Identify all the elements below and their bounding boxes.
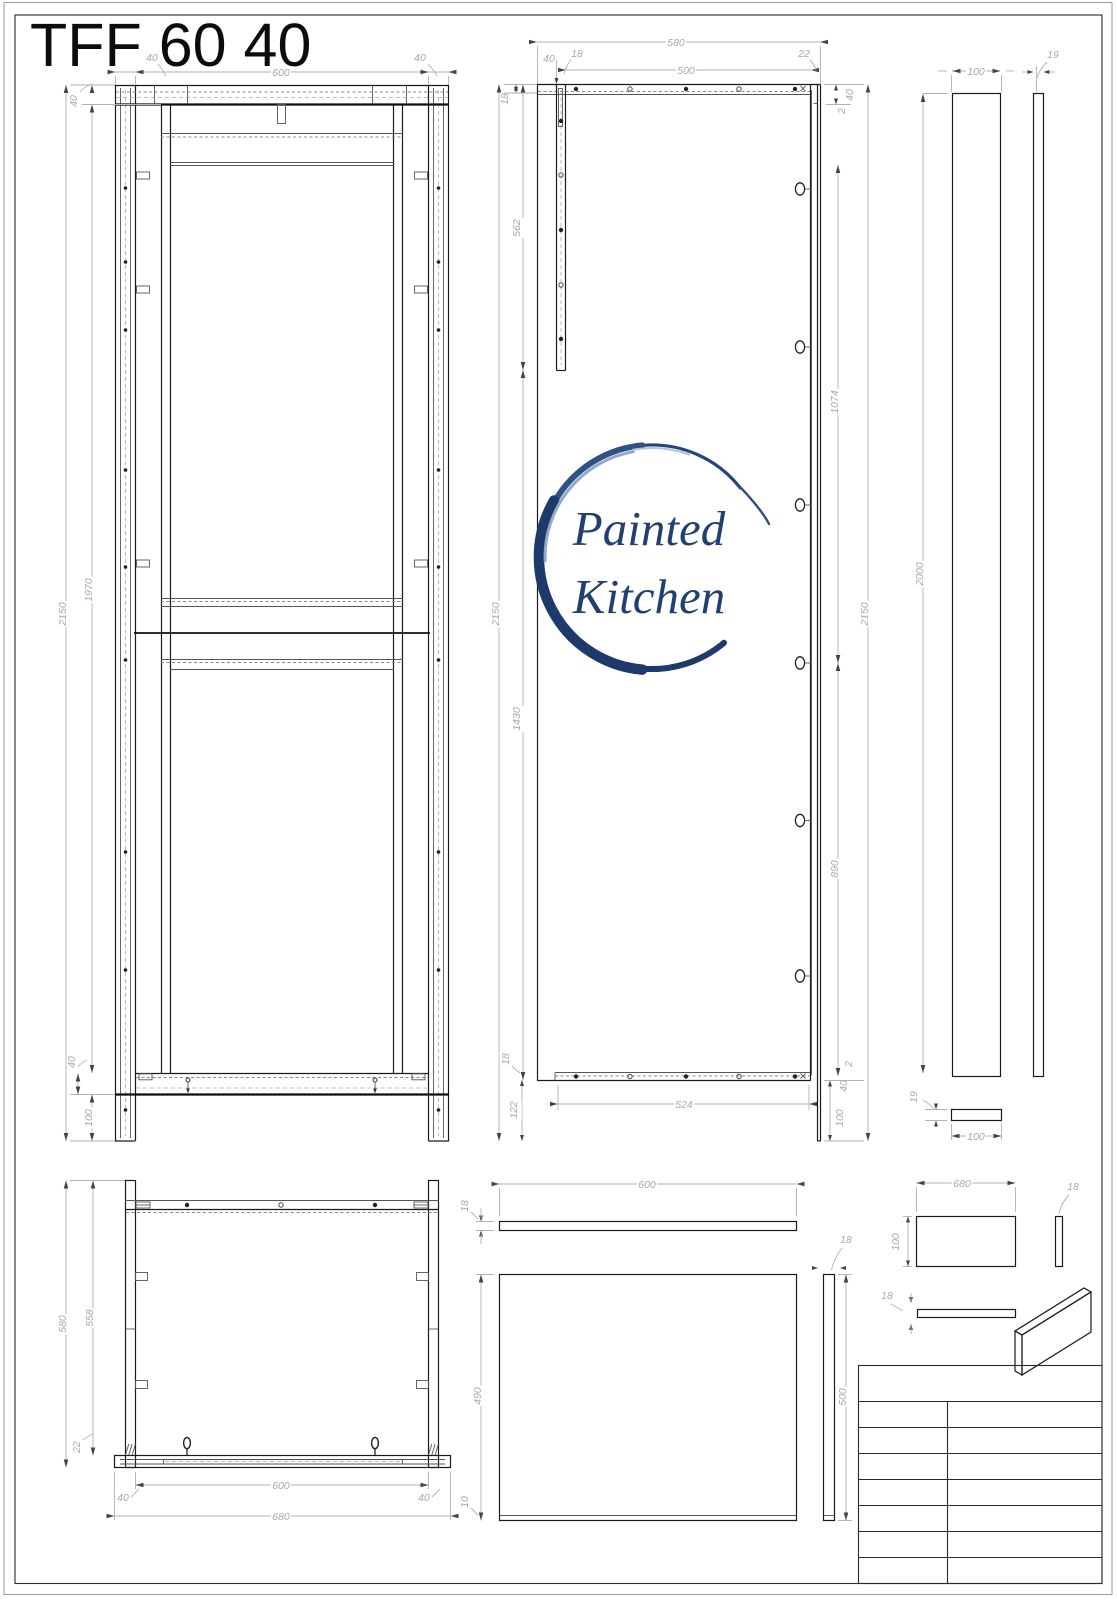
svg-text:18: 18 [499, 93, 511, 105]
svg-text:19: 19 [1047, 49, 1059, 61]
svg-text:1430: 1430 [511, 707, 523, 731]
svg-text:2: 2 [843, 1061, 855, 1068]
svg-text:500: 500 [837, 1388, 849, 1406]
svg-text:Painted: Painted [572, 501, 726, 556]
svg-text:40: 40 [146, 52, 158, 64]
svg-text:680: 680 [953, 1178, 971, 1190]
svg-text:2150: 2150 [490, 602, 502, 627]
svg-text:100: 100 [834, 1109, 846, 1127]
svg-text:22: 22 [71, 1441, 83, 1454]
svg-text:562: 562 [511, 219, 523, 237]
svg-text:100: 100 [83, 1109, 95, 1127]
svg-text:40: 40 [68, 95, 80, 107]
svg-text:Kitchen: Kitchen [572, 569, 725, 624]
svg-text:100: 100 [890, 1233, 902, 1251]
svg-text:600: 600 [638, 1179, 656, 1191]
svg-text:600: 600 [272, 1480, 290, 1492]
svg-text:680: 680 [272, 1511, 290, 1523]
svg-text:580: 580 [667, 37, 685, 49]
svg-text:40: 40 [838, 1080, 850, 1092]
svg-text:40: 40 [414, 52, 426, 64]
svg-text:580: 580 [57, 1315, 69, 1333]
svg-text:500: 500 [677, 65, 695, 77]
svg-text:22: 22 [797, 48, 810, 60]
svg-text:524: 524 [675, 1099, 693, 1111]
svg-text:890: 890 [829, 860, 841, 878]
svg-text:40: 40 [117, 1492, 129, 1504]
svg-text:18: 18 [500, 1053, 512, 1065]
svg-text:600: 600 [272, 67, 290, 79]
svg-text:2: 2 [836, 108, 848, 115]
svg-text:TFF 60 40: TFF 60 40 [30, 11, 311, 79]
svg-text:558: 558 [84, 1309, 96, 1327]
svg-text:40: 40 [543, 53, 555, 65]
svg-text:40: 40 [418, 1492, 430, 1504]
svg-text:122: 122 [508, 1101, 520, 1119]
svg-text:18: 18 [1067, 1181, 1079, 1193]
svg-text:1970: 1970 [83, 578, 95, 602]
svg-text:18: 18 [840, 1234, 852, 1246]
svg-text:18: 18 [881, 1290, 893, 1302]
svg-text:19: 19 [908, 1091, 920, 1103]
svg-text:1074: 1074 [829, 390, 841, 414]
svg-text:100: 100 [967, 66, 985, 78]
svg-text:18: 18 [571, 48, 583, 60]
svg-text:18: 18 [459, 1200, 471, 1212]
svg-text:40: 40 [66, 1056, 78, 1068]
svg-text:490: 490 [472, 1387, 484, 1405]
svg-text:2150: 2150 [57, 602, 69, 627]
svg-text:10: 10 [459, 1496, 471, 1508]
svg-text:100: 100 [967, 1131, 985, 1143]
svg-text:2150: 2150 [859, 602, 871, 627]
svg-text:2000: 2000 [914, 562, 926, 587]
svg-text:40: 40 [844, 89, 856, 101]
